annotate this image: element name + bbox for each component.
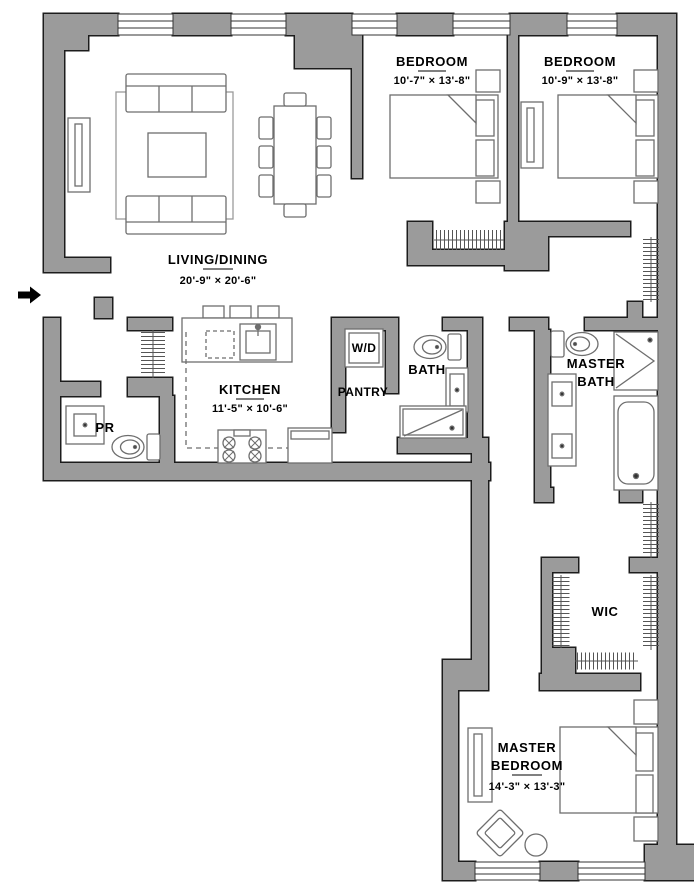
double-vanity — [548, 374, 576, 466]
stove-icon — [218, 430, 266, 463]
refrigerator — [288, 428, 332, 463]
toilet-icon — [414, 334, 461, 360]
side-table — [525, 834, 547, 856]
nightstand — [634, 70, 658, 92]
room-dims-living-dining: 20'-9" × 20'-6" — [180, 275, 257, 287]
window-icon — [231, 14, 286, 35]
window-icon — [475, 862, 540, 880]
toilet-icon — [551, 331, 598, 357]
floor-plan-canvas: LIVING/DINING 20'-9" × 20'-6" BEDROOM 10… — [0, 0, 694, 894]
console-table — [68, 118, 90, 192]
room-label-pantry: PANTRY — [338, 385, 388, 399]
room-dims-master-bedroom: 14'-3" × 13'-3" — [489, 781, 566, 793]
window-icon — [453, 14, 510, 35]
window-icon — [567, 14, 617, 35]
room-label-wic: WIC — [591, 604, 618, 619]
nightstand — [476, 181, 500, 203]
coffee-table — [148, 133, 206, 177]
nightstand — [634, 181, 658, 203]
room-label-master-bath-line2: BATH — [577, 374, 615, 389]
nightstand — [634, 817, 658, 841]
sofa — [126, 196, 226, 234]
room-label-bath: BATH — [408, 362, 446, 377]
toilet-icon — [112, 434, 160, 460]
floor-plan: LIVING/DINING 20'-9" × 20'-6" BEDROOM 10… — [0, 0, 694, 894]
nightstand — [476, 70, 500, 92]
sofa — [126, 74, 226, 112]
room-label-wd: W/D — [352, 341, 377, 355]
room-dims-bedroom-1: 10'-7" × 13'-8" — [394, 75, 471, 87]
window-icon — [578, 862, 645, 880]
room-dims-kitchen: 11'-5" × 10'-6" — [212, 403, 288, 415]
room-label-pr: PR — [95, 420, 114, 435]
room-dims-bedroom-2: 10'-9" × 13'-8" — [542, 75, 619, 87]
sink-icon — [240, 324, 276, 360]
window-icon — [352, 14, 397, 35]
window-icon — [118, 14, 173, 35]
room-label-master-bedroom-line2: BEDROOM — [491, 758, 563, 773]
room-label-bedroom-2: BEDROOM — [544, 54, 616, 69]
room-label-master-bath-line1: MASTER — [567, 356, 626, 371]
room-label-master-bedroom-line1: MASTER — [498, 740, 557, 755]
bathtub-icon — [400, 406, 466, 438]
bathtub-icon — [614, 396, 658, 490]
nightstand — [634, 700, 658, 724]
room-label-living-dining: LIVING/DINING — [168, 252, 268, 267]
room-label-bedroom-1: BEDROOM — [396, 54, 468, 69]
room-label-kitchen: KITCHEN — [219, 382, 281, 397]
